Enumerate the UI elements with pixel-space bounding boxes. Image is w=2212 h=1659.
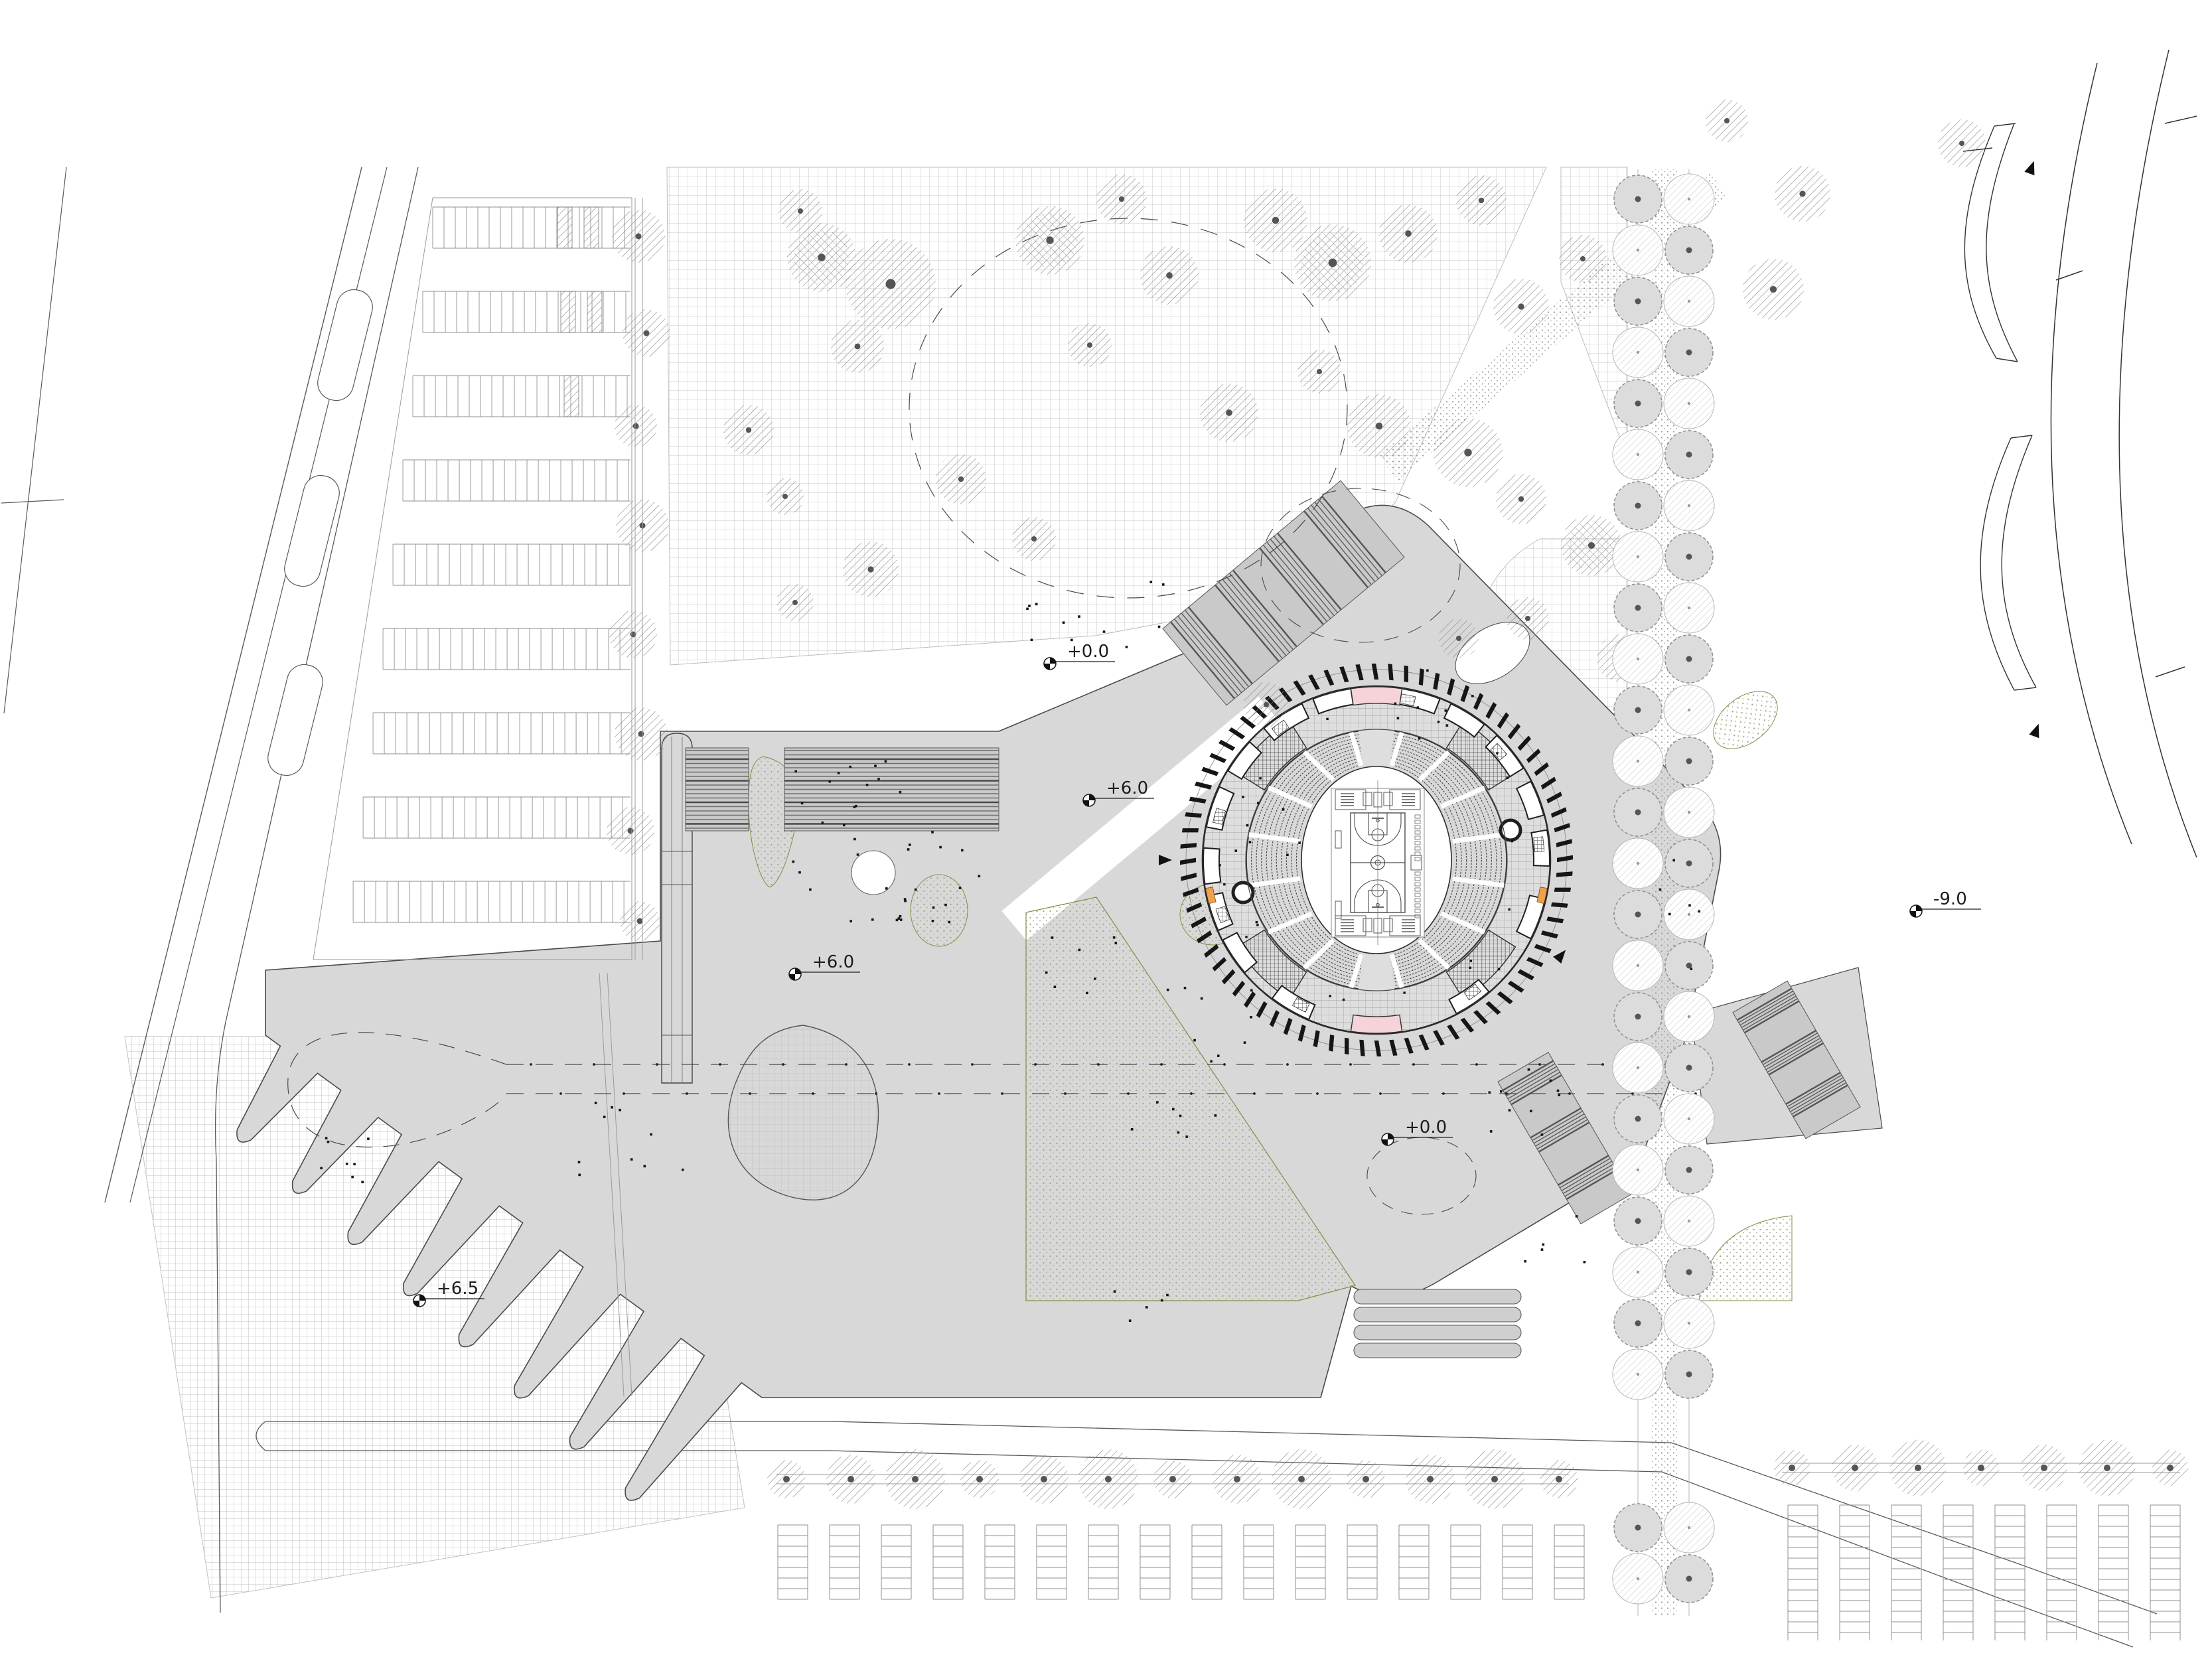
person-dot: [1511, 840, 1513, 842]
southeast-row-tree: [1774, 1450, 1810, 1486]
fin: [1345, 1038, 1349, 1054]
person-dot: [1129, 1319, 1132, 1322]
alley-tree: [1664, 378, 1714, 429]
tree-trunk-dot: [1329, 259, 1337, 267]
tree-trunk-dot: [886, 279, 896, 289]
person-dot: [1103, 630, 1106, 633]
alley-tree: [1613, 1349, 1663, 1400]
tree-trunk-dot: [798, 208, 803, 214]
person-dot: [1149, 581, 1152, 583]
person-dot: [915, 889, 917, 891]
person-dot: [978, 875, 981, 878]
alley-tree: [1614, 277, 1662, 325]
park-tree: [1294, 224, 1371, 301]
promenade-dot: [938, 1092, 940, 1095]
park-tree: [1496, 474, 1546, 524]
tree-trunk-dot: [1456, 636, 1461, 641]
person-dot: [320, 1167, 323, 1170]
promenade-dot: [875, 1092, 877, 1095]
park-tree: [1297, 350, 1341, 394]
promenade-dot: [749, 1092, 751, 1095]
park-tree: [831, 320, 884, 373]
tree-trunk-dot: [1915, 1465, 1921, 1471]
person-dot: [1063, 621, 1065, 624]
tree-trunk-dot: [1637, 862, 1639, 865]
tree-trunk-dot: [1363, 1476, 1369, 1482]
lot-edge-tree: [623, 309, 670, 357]
alley-tree: [1613, 532, 1663, 582]
tree-trunk-dot: [2167, 1465, 2174, 1471]
person-dot: [932, 906, 935, 909]
person-dot: [1471, 695, 1474, 697]
person-dot: [1242, 796, 1244, 798]
person-dot: [325, 1137, 328, 1139]
person-dot: [1530, 1110, 1532, 1113]
promenade-dot: [845, 1063, 848, 1066]
promenade-dot: [719, 1063, 721, 1066]
park-tree: [778, 189, 822, 233]
southeast-row-tree: [1832, 1445, 1878, 1491]
elevation-label: +6.0: [812, 952, 854, 972]
person-dot: [1035, 603, 1038, 606]
tree-trunk-dot: [1635, 401, 1641, 407]
elevation-marker: +0.0: [1044, 642, 1115, 670]
lot-edge-tree: [615, 707, 668, 760]
tree-trunk-dot: [1635, 299, 1641, 305]
tree-trunk-dot: [1427, 1476, 1434, 1482]
lot-edge-tree: [612, 210, 665, 263]
person-dot: [1156, 1101, 1159, 1104]
tree-trunk-dot: [867, 566, 873, 572]
south-row-tree: [1019, 1455, 1069, 1504]
promenade-dot: [1316, 1092, 1319, 1095]
alley-tree: [1613, 1145, 1663, 1195]
park-tree: [1200, 384, 1258, 442]
promenade-dot: [623, 1092, 625, 1095]
alley-tree: [1665, 431, 1713, 478]
promenade-dot: [656, 1063, 658, 1066]
elevation-label: -9.0: [1933, 889, 1967, 909]
tree-trunk-dot: [818, 253, 825, 261]
person-dot: [866, 784, 869, 786]
person-dot: [1250, 989, 1253, 992]
park-tree: [1244, 682, 1289, 727]
alley-tree: [1665, 1044, 1713, 1092]
tree-trunk-dot: [782, 494, 788, 499]
park-tree: [1706, 100, 1748, 142]
alley-tree: [1614, 1095, 1662, 1143]
tree-trunk-dot: [1688, 1220, 1690, 1222]
person-dot: [932, 920, 934, 922]
south-row-tree: [1272, 1449, 1331, 1509]
tree-trunk-dot: [848, 1476, 854, 1482]
tree-trunk-dot: [628, 828, 634, 834]
person-dot: [1167, 989, 1169, 991]
tree-trunk-dot: [792, 600, 798, 605]
promenade-dot: [1064, 1092, 1067, 1095]
person-dot: [948, 921, 951, 924]
elevation-label: +0.0: [1067, 642, 1109, 662]
tree-trunk-dot: [1580, 256, 1585, 261]
north-entry: [1351, 687, 1402, 705]
person-dot: [1114, 1290, 1116, 1293]
person-dot: [1558, 1094, 1561, 1096]
tree-trunk-dot: [1635, 810, 1641, 816]
tree-trunk-dot: [1105, 1476, 1112, 1482]
person-dot: [1070, 639, 1073, 642]
park-tree: [1347, 394, 1411, 458]
accessible-stall: [564, 376, 579, 417]
tree-trunk-dot: [1637, 1066, 1639, 1069]
person-dot: [828, 780, 831, 783]
person-dot: [1115, 942, 1118, 944]
park-tree: [1068, 323, 1112, 367]
tree-trunk-dot: [746, 427, 751, 433]
person-dot: [367, 1137, 370, 1140]
tree-trunk-dot: [1491, 1476, 1498, 1482]
alley-tree: [1613, 1553, 1663, 1604]
park-tree: [843, 541, 899, 597]
highway-arc: [2051, 50, 2197, 857]
alley-tree: [1664, 1298, 1714, 1348]
person-dot: [1256, 921, 1258, 923]
tree-trunk-dot: [1405, 230, 1412, 237]
tree-trunk-dot: [1031, 536, 1037, 541]
person-dot: [1086, 992, 1088, 995]
tree-trunk-dot: [1688, 1526, 1690, 1529]
tree-trunk-dot: [1686, 1372, 1692, 1378]
person-dot: [853, 838, 856, 841]
alley-tree: [1614, 482, 1662, 530]
promenade-dot: [1286, 1063, 1289, 1066]
tree-trunk-dot: [636, 234, 642, 240]
person-dot: [1672, 859, 1675, 862]
promenade-dot: [1034, 1063, 1037, 1066]
lot-edge-tree: [615, 405, 657, 447]
tree-trunk-dot: [1688, 402, 1690, 405]
alley-tree: [1613, 225, 1663, 275]
person-dot: [877, 778, 880, 780]
person-dot: [595, 1102, 597, 1104]
promenade-dot: [1127, 1092, 1130, 1095]
bus-shelters: [1354, 1289, 1521, 1358]
person-dot: [1177, 1131, 1180, 1134]
alley-tree: [1665, 1146, 1713, 1194]
tree-trunk-dot: [1635, 1116, 1641, 1122]
promenade-dot: [1505, 1092, 1508, 1095]
person-dot: [899, 791, 902, 794]
tree-trunk-dot: [1234, 1476, 1240, 1482]
bus-shelter-bar: [1354, 1343, 1521, 1358]
promenade-dot: [1475, 1063, 1478, 1066]
person-dot: [1028, 605, 1031, 607]
south-row-tree: [1406, 1455, 1455, 1504]
accessible-stall: [561, 291, 575, 332]
person-dot: [1508, 908, 1510, 910]
southeast-row-tree: [2079, 1440, 2136, 1496]
plaza-round-pond: [851, 851, 895, 895]
tree-trunk-dot: [1635, 1525, 1641, 1531]
south-row-tree: [767, 1460, 806, 1498]
south-row-tree: [1465, 1449, 1524, 1509]
person-dot: [792, 861, 795, 863]
elevation-marker: -9.0: [1910, 889, 1981, 917]
tree-trunk-dot: [1166, 272, 1173, 279]
tree-trunk-dot: [1464, 449, 1471, 456]
person-dot: [1235, 849, 1238, 852]
tree-trunk-dot: [1688, 1118, 1690, 1120]
alley-tree: [1613, 634, 1663, 684]
park-tree: [1244, 188, 1307, 252]
person-dot: [1541, 1248, 1544, 1251]
lot-edge-tree: [620, 901, 660, 941]
tree-trunk-dot: [1637, 249, 1639, 252]
person-dot: [619, 1109, 621, 1112]
person-dot: [1185, 1135, 1188, 1138]
person-dot: [1045, 972, 1048, 974]
person-dot: [904, 898, 907, 901]
alley-tree: [1614, 788, 1662, 836]
person-dot: [1298, 841, 1301, 844]
person-dot: [1688, 904, 1691, 907]
tree-trunk-dot: [1959, 141, 1964, 146]
person-dot: [1541, 1133, 1544, 1136]
person-dot: [1184, 987, 1187, 989]
tree-trunk-dot: [1852, 1465, 1858, 1471]
alley-tree: [1664, 583, 1714, 633]
road-line: [4, 167, 66, 713]
promenade-dot: [1442, 1092, 1445, 1095]
person-dot: [1528, 1068, 1530, 1071]
tree-trunk-dot: [1686, 1269, 1692, 1275]
tree-trunk-dot: [1978, 1465, 1984, 1471]
tree-trunk-dot: [855, 344, 861, 350]
promenade-dot: [1001, 1092, 1003, 1095]
alley-tree: [1614, 686, 1662, 734]
south-row-tree: [1347, 1460, 1385, 1498]
tree-trunk-dot: [1688, 504, 1690, 507]
plaza-oval-bed: [911, 875, 968, 946]
alley-tree: [1613, 736, 1663, 786]
person-dot: [1161, 1299, 1163, 1302]
promenade-dot: [1601, 1063, 1604, 1066]
alley-tree: [1665, 1555, 1713, 1603]
person-dot: [1026, 608, 1029, 611]
tree-trunk-dot: [1686, 1576, 1692, 1582]
tree-trunk-dot: [1637, 351, 1639, 354]
person-dot: [578, 1174, 581, 1177]
marker-quadrant: [1916, 905, 1922, 911]
person-dot: [1469, 967, 1471, 969]
bus-shelter-bar: [1354, 1307, 1521, 1322]
south-row-tree: [1078, 1449, 1138, 1509]
person-dot: [857, 853, 859, 856]
alley-tree: [1614, 380, 1662, 427]
promenade-dot: [971, 1063, 974, 1066]
south-row-tree: [1540, 1460, 1578, 1498]
southeast-row-tree: [2152, 1450, 2188, 1486]
alley-tree: [1613, 429, 1663, 480]
elevation-label: +0.0: [1405, 1118, 1447, 1137]
tree-trunk-dot: [1686, 452, 1692, 458]
person-dot: [1246, 824, 1249, 827]
person-dot: [1524, 1260, 1526, 1263]
tree-trunk-dot: [1686, 350, 1692, 356]
person-dot: [1326, 718, 1328, 720]
tree-trunk-dot: [1119, 196, 1124, 202]
person-dot: [1215, 1114, 1217, 1117]
person-dot: [346, 1163, 348, 1165]
tree-trunk-dot: [1686, 248, 1692, 253]
fin: [1554, 888, 1571, 892]
person-dot: [1257, 802, 1260, 804]
tree-trunk-dot: [1688, 607, 1690, 609]
tree-trunk-dot: [1518, 303, 1524, 309]
tree-trunk-dot: [637, 918, 643, 924]
park-tree: [846, 239, 936, 329]
tree-trunk-dot: [912, 1476, 919, 1482]
person-dot: [849, 766, 851, 768]
tree-trunk-dot: [1226, 409, 1232, 416]
tree-trunk-dot: [1046, 236, 1053, 244]
person-dot: [1131, 1128, 1134, 1131]
alley-tree: [1613, 1043, 1663, 1093]
tree-trunk-dot: [1588, 542, 1595, 549]
person-dot: [1286, 854, 1289, 857]
tree-trunk-dot: [2104, 1465, 2110, 1471]
tree-trunk-dot: [1686, 758, 1692, 764]
person-dot: [644, 1165, 646, 1168]
person-dot: [1397, 717, 1400, 720]
tree-trunk-dot: [2041, 1465, 2047, 1471]
site-plan: Sports arena site plan with basketball c…: [0, 0, 2212, 1659]
person-dot: [843, 824, 846, 827]
alley-tree: [1665, 533, 1713, 581]
person-dot: [1690, 968, 1693, 970]
park-tree: [1775, 166, 1830, 222]
person-dot: [1394, 703, 1397, 705]
alley-tree: [1614, 1299, 1662, 1347]
southeast-row-tree: [2021, 1445, 2067, 1491]
person-dot: [1490, 1130, 1493, 1133]
park-tree: [1507, 597, 1549, 640]
plan-layers: +0.0+6.0+6.0+0.0-9.0+6.5: [1, 50, 2197, 1647]
person-dot: [1426, 670, 1429, 672]
tree-trunk-dot: [1686, 656, 1692, 662]
person-dot: [801, 802, 804, 805]
alley-tree: [1664, 174, 1714, 224]
tree-trunk-dot: [638, 731, 644, 737]
tree-trunk-dot: [1637, 760, 1639, 762]
tree-trunk-dot: [1637, 1271, 1639, 1273]
road-island: [281, 472, 343, 590]
person-dot: [1446, 724, 1449, 727]
person-dot: [900, 918, 903, 921]
promenade-dot: [1097, 1063, 1100, 1066]
tree-trunk-dot: [1686, 861, 1692, 867]
person-dot: [1126, 646, 1128, 648]
alley-tree: [1664, 685, 1714, 735]
person-dot: [931, 831, 934, 833]
elevation-label: +6.5: [437, 1279, 479, 1299]
person-dot: [1054, 985, 1057, 988]
site-plan-figure: Sports arena site plan with basketball c…: [0, 0, 2212, 1659]
alley-tree: [1613, 1247, 1663, 1297]
accessible-stall: [584, 207, 599, 248]
promenade-dot: [1349, 1063, 1352, 1066]
tree-trunk-dot: [1637, 1577, 1639, 1580]
promenade-dot: [1538, 1063, 1541, 1066]
person-dot: [1329, 995, 1331, 997]
tree-trunk-dot: [1635, 912, 1641, 918]
tree-trunk-dot: [1376, 423, 1383, 430]
tree-trunk-dot: [1635, 707, 1641, 713]
tree-trunk-dot: [958, 476, 964, 482]
park-tree: [1561, 515, 1622, 576]
person-dot: [1217, 1054, 1220, 1057]
person-dot: [1584, 1261, 1586, 1263]
park-tree: [1439, 618, 1479, 658]
person-dot: [822, 822, 824, 824]
south-row-tree: [1213, 1455, 1262, 1504]
tree-trunk-dot: [1688, 1015, 1690, 1018]
person-dot: [1470, 960, 1472, 962]
tree-trunk-dot: [1635, 1014, 1641, 1020]
alley-tree: [1614, 993, 1662, 1041]
person-dot: [1509, 1109, 1511, 1112]
alley-tree: [1665, 839, 1713, 887]
basketball-court: [1331, 780, 1424, 945]
person-dot: [798, 871, 801, 874]
person-dot: [1113, 936, 1116, 939]
road-island: [314, 286, 376, 404]
person-dot: [1245, 936, 1247, 938]
south-row-tree: [1153, 1460, 1192, 1498]
alley-tree: [1613, 940, 1663, 991]
person-dot: [853, 806, 856, 808]
person-dot: [1249, 841, 1252, 843]
person-dot: [885, 760, 887, 763]
person-dot: [361, 1181, 364, 1184]
tree-trunk-dot: [1635, 1321, 1641, 1327]
alley-tree: [1664, 1094, 1714, 1144]
tree-trunk-dot: [1264, 702, 1269, 707]
person-dot: [630, 1158, 633, 1161]
marker-quadrant: [1044, 664, 1050, 670]
person-dot: [1145, 1306, 1148, 1309]
person-dot: [794, 770, 797, 773]
park-tree: [1938, 119, 1986, 167]
fin: [1404, 666, 1408, 682]
person-dot: [885, 887, 888, 890]
person-dot: [351, 1176, 354, 1179]
person-dot: [1193, 1039, 1196, 1042]
promenade-dot: [908, 1063, 911, 1066]
alley-tree: [1664, 1196, 1714, 1246]
person-dot: [1668, 913, 1671, 916]
alley-tree: [1665, 1248, 1713, 1296]
person-dot: [1403, 991, 1405, 993]
person-dot: [682, 1169, 684, 1171]
promenade-dot: [812, 1092, 814, 1095]
person-dot: [1256, 924, 1258, 926]
tree-trunk-dot: [1637, 964, 1639, 967]
southeast-row-tree: [1890, 1440, 1947, 1496]
person-dot: [1282, 808, 1285, 811]
promenade-dot: [593, 1063, 595, 1066]
person-dot: [1218, 864, 1220, 866]
park-tree: [1434, 418, 1503, 487]
